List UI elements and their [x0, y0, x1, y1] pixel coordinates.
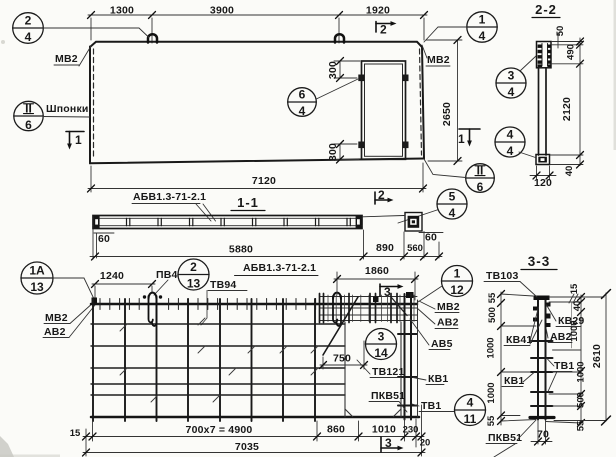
svg-text:ТВ103: ТВ103: [486, 270, 519, 282]
svg-text:КВ1: КВ1: [428, 373, 448, 385]
svg-text:АВ2: АВ2: [44, 326, 66, 338]
svg-text:11: 11: [464, 412, 477, 426]
svg-text:6: 6: [25, 118, 32, 132]
svg-text:Шпонки: Шпонки: [46, 103, 89, 115]
svg-text:КВ41: КВ41: [506, 334, 532, 346]
svg-text:АВ2: АВ2: [437, 317, 459, 329]
svg-text:60: 60: [425, 232, 437, 244]
svg-text:1: 1: [479, 13, 486, 27]
svg-text:300: 300: [327, 143, 339, 161]
svg-text:40: 40: [564, 166, 575, 177]
svg-text:МВ2: МВ2: [437, 301, 460, 313]
svg-text:14: 14: [374, 346, 388, 360]
svg-text:5: 5: [449, 190, 456, 204]
svg-text:500: 500: [487, 307, 498, 323]
svg-text:2650: 2650: [441, 102, 453, 126]
svg-text:4: 4: [508, 85, 515, 99]
svg-text:5880: 5880: [229, 244, 253, 256]
svg-text:4: 4: [507, 144, 514, 158]
svg-text:1: 1: [458, 132, 465, 146]
svg-text:500: 500: [576, 392, 587, 408]
svg-text:3: 3: [508, 69, 515, 83]
svg-text:55: 55: [487, 292, 498, 303]
svg-text:МВ2: МВ2: [45, 312, 68, 324]
svg-text:4: 4: [479, 29, 486, 43]
svg-text:АВ5: АВ5: [431, 338, 453, 350]
svg-text:1010: 1010: [372, 424, 396, 436]
svg-text:20: 20: [420, 438, 431, 449]
svg-text:ПКВ51: ПКВ51: [488, 432, 522, 444]
svg-text:1: 1: [454, 267, 461, 281]
svg-text:230: 230: [403, 425, 419, 436]
svg-text:15: 15: [569, 283, 580, 294]
svg-text:560: 560: [407, 243, 423, 254]
svg-text:120: 120: [534, 177, 552, 189]
svg-text:4: 4: [25, 30, 32, 44]
svg-text:ТВ1: ТВ1: [421, 400, 441, 412]
svg-text:1300: 1300: [110, 5, 134, 17]
svg-text:13: 13: [187, 277, 201, 291]
svg-text:КВ29: КВ29: [558, 315, 584, 327]
svg-text:860: 860: [327, 424, 345, 436]
svg-text:4: 4: [299, 104, 306, 118]
svg-text:3: 3: [378, 330, 385, 344]
svg-text:40: 40: [572, 301, 583, 312]
svg-text:3: 3: [384, 285, 391, 299]
svg-text:2: 2: [380, 23, 387, 37]
svg-text:АБВ1.3-71-2.1: АБВ1.3-71-2.1: [133, 191, 206, 203]
svg-text:1000: 1000: [486, 382, 497, 403]
svg-text:750: 750: [333, 353, 351, 365]
svg-text:300: 300: [327, 61, 339, 79]
svg-text:55: 55: [576, 420, 587, 431]
svg-text:3900: 3900: [210, 5, 234, 17]
svg-text:ПВ4: ПВ4: [156, 269, 178, 281]
svg-text:1000: 1000: [486, 337, 497, 358]
svg-text:15: 15: [70, 428, 81, 439]
svg-text:890: 890: [376, 242, 394, 254]
svg-text:АВ2: АВ2: [550, 331, 572, 343]
svg-text:4: 4: [467, 396, 474, 410]
svg-text:6: 6: [299, 88, 306, 102]
svg-text:2610: 2610: [591, 344, 603, 368]
svg-text:3: 3: [385, 436, 392, 450]
svg-text:1А: 1А: [29, 264, 45, 278]
svg-text:МВ2: МВ2: [55, 53, 78, 65]
svg-text:7035: 7035: [235, 441, 259, 453]
svg-text:ПКВ51: ПКВ51: [371, 390, 405, 402]
svg-text:2: 2: [25, 14, 32, 28]
svg-text:4: 4: [449, 206, 456, 220]
svg-text:700х7 = 4900: 700х7 = 4900: [186, 424, 253, 436]
svg-text:1860: 1860: [365, 265, 389, 277]
svg-text:МВ2: МВ2: [427, 54, 450, 66]
svg-text:7120: 7120: [252, 175, 276, 187]
svg-text:КВ1: КВ1: [504, 375, 524, 387]
svg-text:4: 4: [507, 128, 514, 142]
svg-text:6: 6: [477, 180, 484, 194]
svg-text:2-2: 2-2: [535, 2, 557, 17]
svg-text:2120: 2120: [561, 97, 573, 121]
svg-text:ТВ121: ТВ121: [372, 366, 405, 378]
svg-text:1-1: 1-1: [237, 195, 259, 210]
svg-text:12: 12: [450, 283, 464, 297]
svg-text:АБВ1.3-71-2.1: АБВ1.3-71-2.1: [243, 262, 316, 274]
svg-text:70: 70: [537, 429, 549, 441]
svg-text:2: 2: [378, 188, 385, 202]
svg-text:1240: 1240: [100, 270, 124, 282]
svg-text:13: 13: [30, 280, 44, 294]
svg-text:ТВ94: ТВ94: [210, 279, 236, 291]
svg-text:2: 2: [190, 260, 197, 274]
svg-text:55: 55: [486, 415, 497, 426]
svg-text:490: 490: [566, 44, 577, 60]
svg-text:ТВ1: ТВ1: [554, 360, 574, 372]
svg-text:1920: 1920: [366, 5, 390, 17]
svg-text:60: 60: [98, 233, 110, 245]
svg-text:50: 50: [555, 26, 566, 37]
svg-text:1000: 1000: [576, 361, 587, 382]
svg-text:1: 1: [75, 133, 82, 147]
svg-text:3-3: 3-3: [528, 254, 551, 269]
